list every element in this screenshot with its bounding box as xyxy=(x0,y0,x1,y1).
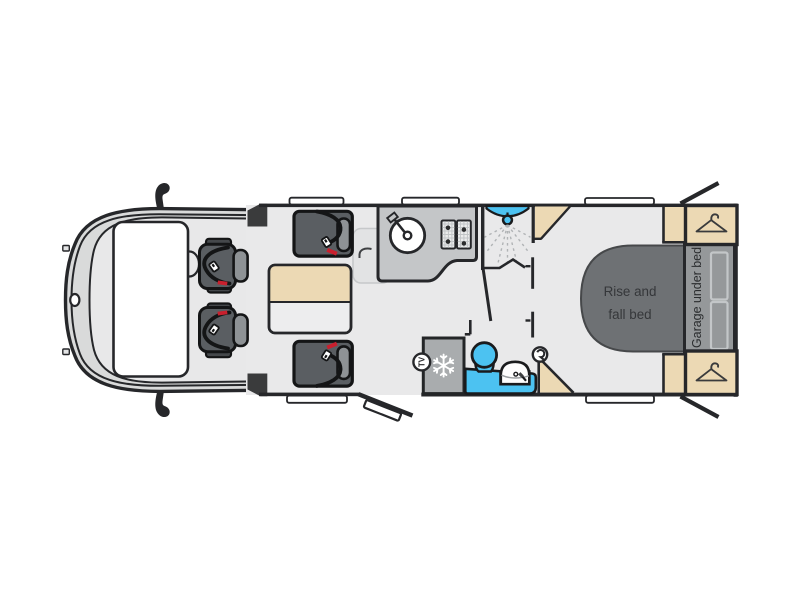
svg-text:Garage under bed: Garage under bed xyxy=(689,247,704,348)
svg-text:Rise and: Rise and xyxy=(604,284,657,299)
svg-text:TV: TV xyxy=(417,356,426,367)
svg-text:fall bed: fall bed xyxy=(608,307,651,322)
